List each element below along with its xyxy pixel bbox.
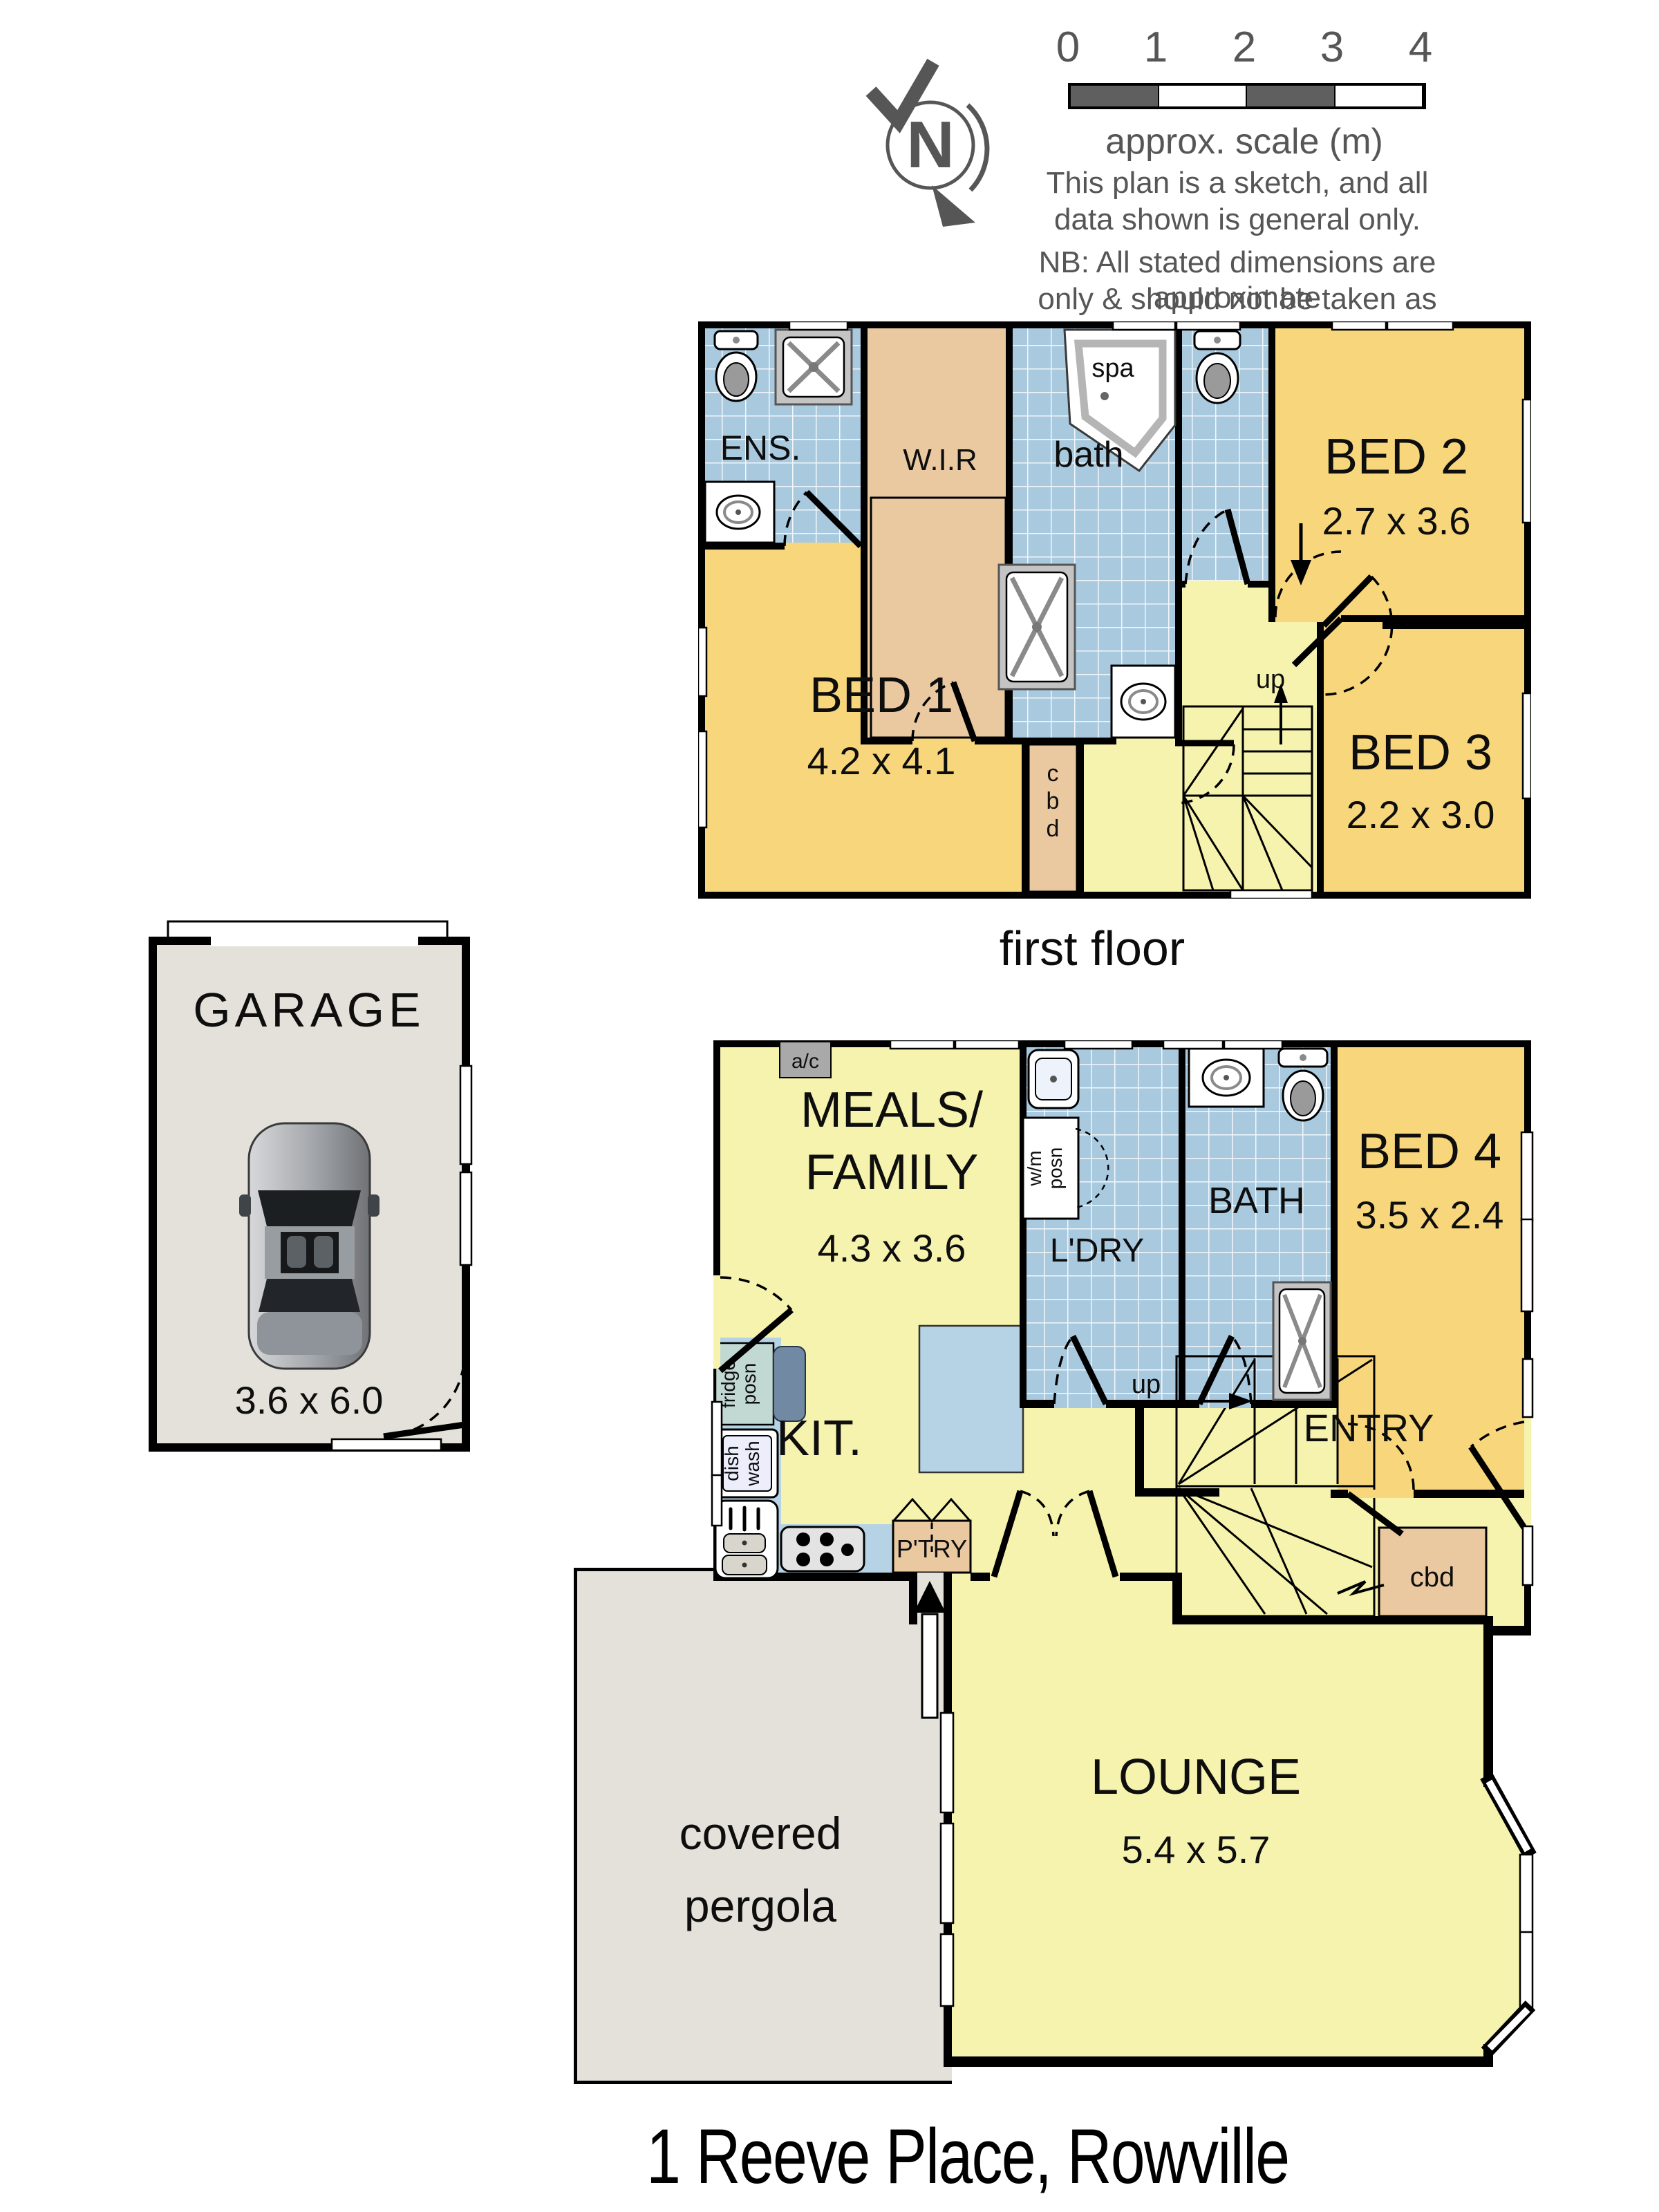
spa-label: spa [1091,354,1134,383]
window [1521,1132,1533,1221]
fridge-label: posn [738,1363,760,1405]
entry-strip [1493,1616,1524,1627]
window [460,1172,471,1265]
door-opening [713,1275,720,1369]
ens-label: ENS. [720,429,801,467]
basin-icon [1112,666,1175,738]
car-top-view [239,1123,379,1369]
door-opening [1185,581,1248,588]
meals-label: FAMILY [805,1145,979,1200]
door-opening [1524,1417,1531,1528]
cbd-letter: d [1047,816,1060,842]
bath-label: bath [1053,435,1123,475]
pergola-label: covered [679,1808,842,1859]
shower-icon [776,330,852,404]
ldry-label: L'DRY [1050,1232,1144,1269]
window [955,1040,1019,1049]
room-lounge [952,1581,1529,2056]
bath-label: BATH [1208,1180,1305,1221]
kit-label: KIT. [776,1411,862,1466]
bed4-label: BED 4 [1358,1124,1501,1179]
window [1521,1219,1533,1311]
compass-swoosh-icon [968,105,987,190]
scale-caption: approx. scale (m) [1068,121,1421,162]
kitchen-sink-icon [715,1501,778,1578]
north-compass: N [863,48,1008,242]
pergola-label: pergola [684,1880,836,1931]
bed2-dims: 2.7 x 3.6 [1322,499,1471,543]
bed1-dims: 4.2 x 4.1 [807,739,956,782]
ground-floor-plan: a/c w/m posn fridge posn dish [574,1040,1541,2094]
door-opening [917,1573,944,1581]
laundry-trough-icon [1029,1050,1078,1108]
scale-tick: 1 [1144,23,1168,72]
bed3-dims: 2.2 x 3.0 [1347,793,1495,836]
window [941,1713,953,1812]
window [941,1824,953,1923]
cooktop-icon [781,1527,864,1571]
scale-bar-segment [1334,86,1424,106]
basin-icon [705,482,774,543]
toilet-icon [715,331,758,401]
bed1-label: BED 1 [809,668,953,723]
garage-plan: GARAGE 3.6 x 6.0 [145,919,477,1459]
window [460,1066,471,1164]
cbd-letter: b [1047,788,1060,814]
wir-label: W.I.R [903,443,977,477]
address-title: 1 Reeve Place, Rowville [484,2112,1452,2201]
window [1163,1040,1223,1049]
scale-tick: 4 [1409,23,1432,72]
disclaimer-line: This plan is a sketch, and all [1037,166,1438,201]
window [1113,321,1175,330]
window [712,1475,722,1526]
garage-door-opening [211,935,418,946]
cbd-letter: c [1047,760,1059,787]
door-opening [1348,1490,1414,1498]
scale-bar-segment [1158,86,1248,106]
scale-tick: 0 [1056,23,1080,72]
door-opening [990,1573,1120,1581]
stairs-up-label: up [1132,1370,1161,1399]
garage-dims: 3.6 x 6.0 [235,1378,384,1422]
basin-icon [1189,1049,1264,1107]
scale-legend: 0 1 2 3 4 approx. scale (m) This plan is… [1037,17,1438,308]
ac-label: a/c [791,1050,819,1073]
scale-bar-segment [1247,86,1334,106]
garage-label: GARAGE [193,983,425,1037]
window [1065,1040,1132,1049]
window [698,628,706,696]
compass-north-letter: N [906,108,954,182]
island-bench [919,1326,1023,1472]
scale-tick: 3 [1320,23,1344,72]
dishwasher-label: wash [742,1441,763,1486]
lounge-dims: 5.4 x 5.7 [1122,1828,1271,1871]
window [1332,321,1386,330]
bed2-label: BED 2 [1324,429,1468,485]
scale-bar [1068,83,1426,109]
scale-tick: 2 [1232,23,1256,72]
wm-label: posn [1044,1147,1066,1190]
wm-label: w/m [1024,1150,1045,1186]
meals-label: MEALS/ [800,1082,983,1138]
shower-icon [999,565,1075,689]
window [1523,693,1531,798]
ptry-label: P'TRY [897,1535,967,1563]
bed3-label: BED 3 [1349,725,1492,780]
first-floor-plan: up spa [698,321,1531,899]
window [1523,400,1531,523]
bed4-dims: 3.5 x 2.4 [1356,1193,1504,1237]
window [1523,1526,1533,1585]
toilet-icon [1279,1049,1327,1121]
window [1387,321,1453,330]
window [789,321,847,330]
door-opening [785,543,861,550]
shower-icon [1273,1282,1331,1400]
window [890,1040,954,1049]
dishwasher-label: dish [721,1445,742,1481]
scale-bar-segment [1071,86,1158,106]
first-floor-caption: first floor [885,921,1300,976]
window [332,1439,441,1450]
window [698,731,706,827]
window [1230,890,1312,899]
toilet-icon [1194,331,1240,403]
meals-dims: 4.3 x 3.6 [818,1226,966,1270]
door-opening [1054,1400,1106,1408]
lounge-label: LOUNGE [1091,1750,1301,1805]
window [1224,1040,1282,1049]
window [1177,321,1240,330]
window [1523,1359,1533,1417]
entry-label: ENTRY [1304,1406,1434,1450]
compass-needle-icon [932,185,975,227]
cbd-label: cbd [1410,1562,1455,1593]
window [712,1402,722,1477]
window [941,1934,953,2006]
disclaimer-line: data shown is general only. [1037,203,1438,238]
